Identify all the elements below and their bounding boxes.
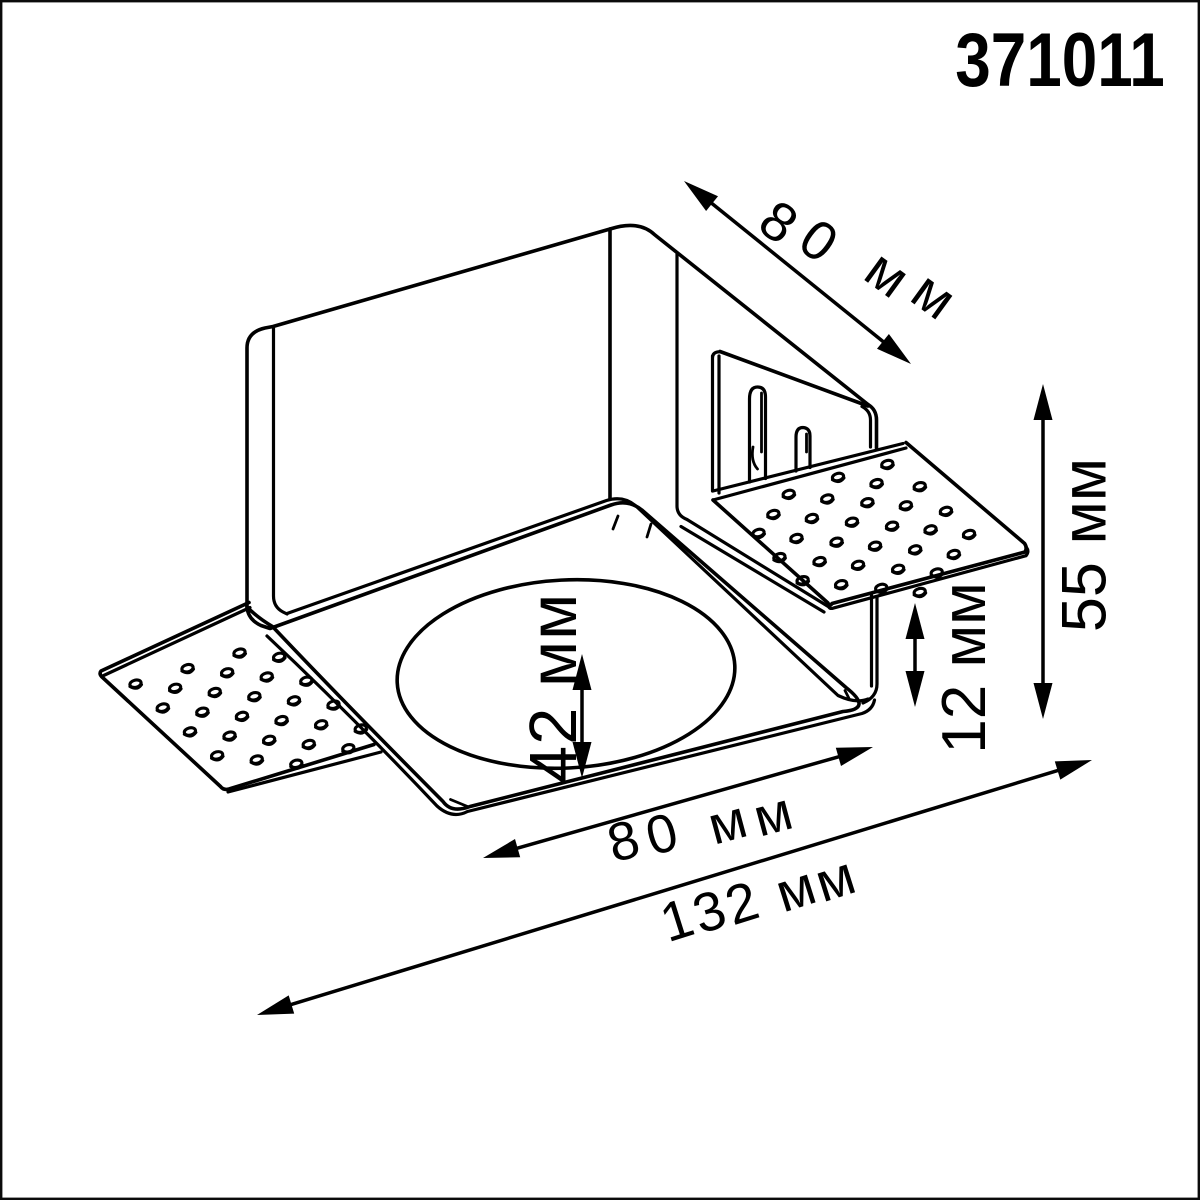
svg-text:42 мм: 42 мм <box>516 593 591 783</box>
svg-text:12 мм: 12 мм <box>930 582 999 753</box>
svg-text:371011: 371011 <box>955 17 1164 103</box>
svg-text:55 мм: 55 мм <box>1050 458 1120 632</box>
